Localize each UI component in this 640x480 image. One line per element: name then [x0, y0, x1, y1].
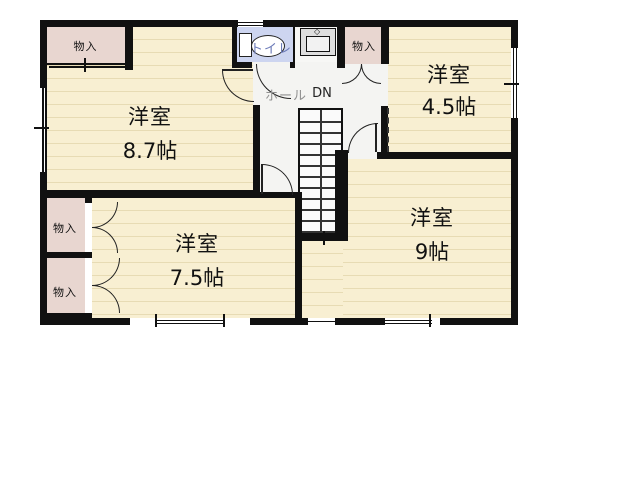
wall-8-7-bottom [40, 190, 260, 198]
wall-right-lower [511, 118, 518, 325]
wall-bottom-4 [440, 318, 518, 325]
door-leaf-room-9 [375, 123, 377, 152]
closet-top-center-label: 物入 [342, 38, 386, 54]
wall-bottom-3 [335, 318, 385, 325]
wall-right-upper [511, 20, 518, 48]
wall-closet-left-divider [40, 252, 92, 258]
staircase-center-line [320, 110, 322, 233]
closet-left-middle-label: 物入 [44, 220, 86, 236]
room-9-size: 9帖 [372, 236, 492, 266]
room-4-5-sliding-door [387, 108, 389, 152]
door-leaf-room-8-7 [222, 69, 253, 71]
wall-closet-left-bottom [47, 313, 92, 318]
wall-8-7-hall [253, 105, 260, 198]
hall-label: ホール [263, 85, 309, 104]
room-9-name: 洋室 [372, 202, 492, 232]
wall-7-5-right [295, 192, 302, 325]
stairs-corner-tick [323, 231, 325, 245]
room-7-5-floor [92, 198, 295, 318]
room-7-5-size: 7.5帖 [137, 262, 257, 292]
toilet-label: トイレ [246, 38, 296, 57]
room-9-floor-ext [302, 241, 343, 318]
wall-stairs-right [335, 150, 348, 241]
closet-tl-sliding-door [44, 63, 128, 65]
wall-closet-left-stub [85, 198, 92, 203]
wall-bottom-1 [40, 318, 130, 325]
wall-toilet-bottom [232, 62, 252, 68]
wall-9-top-right [377, 152, 513, 159]
stairs-dn-label: DN [309, 86, 335, 101]
washstand-icon: ◇ [300, 28, 336, 56]
wall-left-upper [40, 20, 47, 88]
faucet-icon: ◇ [314, 27, 320, 36]
room-8-7-name: 洋室 [90, 101, 210, 131]
floorplan-canvas: ◇ 洋室 8.7帖 洋室 4.5帖 洋室 9帖 洋室 7.5帖 物入 物入 物入… [0, 0, 640, 480]
room-4-5-floor [388, 27, 511, 152]
wall-top-left [40, 20, 238, 27]
room-8-7-size: 8.7帖 [90, 135, 210, 165]
closet-top-left-label: 物入 [63, 38, 108, 54]
wall-toilet-left [232, 20, 237, 68]
room-4-5-size: 4.5帖 [390, 91, 508, 121]
door-leaf-room-7-5 [261, 164, 263, 194]
room-4-5-name: 洋室 [390, 59, 508, 89]
closet-left-bottom-label: 物入 [44, 284, 86, 300]
room-7-5-name: 洋室 [137, 228, 257, 258]
window-left-tick [34, 127, 49, 129]
wall-top-right [263, 20, 518, 27]
